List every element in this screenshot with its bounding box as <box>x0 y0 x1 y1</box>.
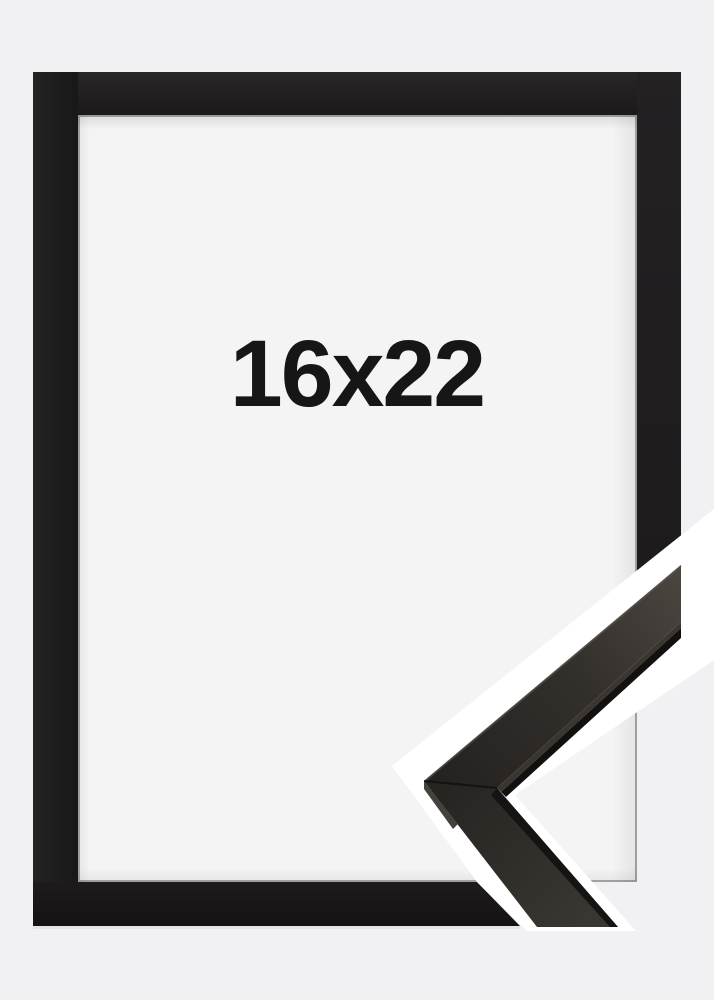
frame-bottom-border <box>33 882 520 926</box>
frame-left-border <box>33 72 78 926</box>
frame-size-label: 16x22 <box>230 321 484 427</box>
frame-product-image: 16x22 <box>0 0 714 1000</box>
product-photo: 16x22 <box>0 0 714 1000</box>
frame-ground-shadow <box>33 926 520 929</box>
opening-shadow-top <box>78 115 637 130</box>
frame-right-border <box>637 72 681 572</box>
opening-shadow-right <box>612 115 637 882</box>
frame-top-border <box>33 72 681 115</box>
